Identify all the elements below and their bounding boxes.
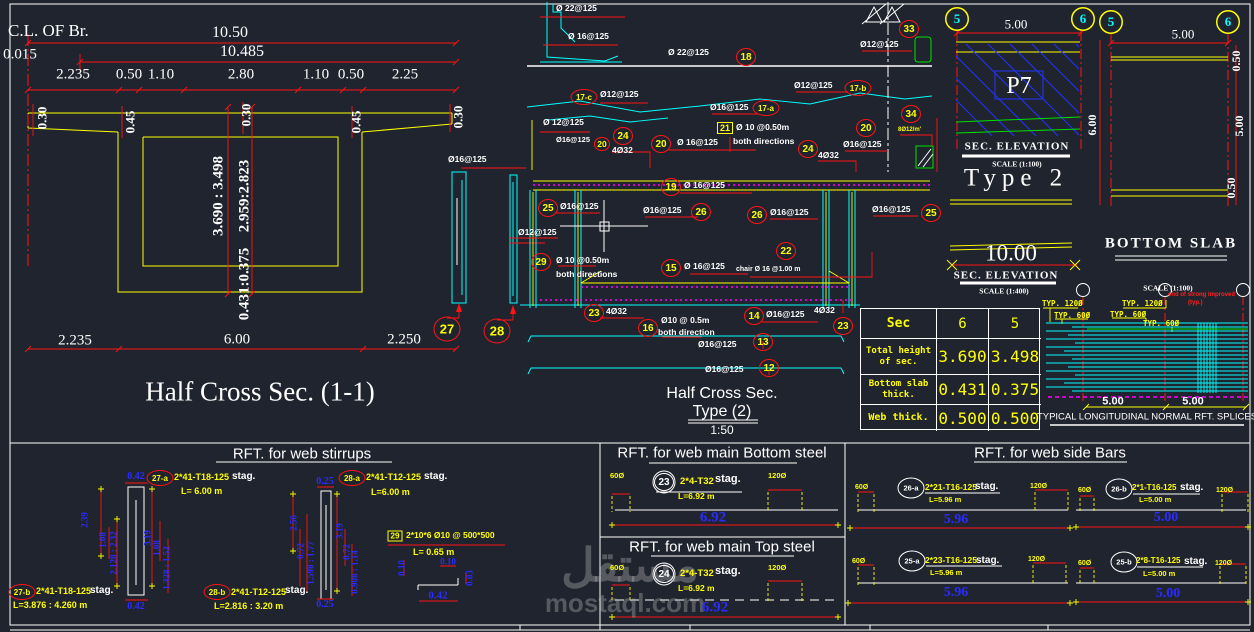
bar-length: L=5.00 m [1139, 496, 1171, 504]
dim-60: 60Ø [1078, 560, 1091, 567]
rebar-label: Ø12@125 [794, 81, 833, 90]
dim-0-015: 0.015 [3, 48, 37, 63]
rebar-label: Ø 10 @0.50m [556, 256, 609, 265]
dim-60: 60Ø [610, 564, 624, 572]
splice-note: end of strong improved [1168, 292, 1235, 298]
bar-dim: 5.00 [1154, 511, 1179, 525]
view-title: SEC. ELEVATION [965, 142, 1070, 153]
rebar-label: 4Ø32 [818, 151, 839, 160]
mark-balloon-28b: 28-b [204, 584, 231, 600]
dim-60: 60Ø [855, 484, 868, 491]
rebar-label: both directions [733, 137, 794, 146]
seg-dim: 0.50 [116, 68, 142, 83]
grid-bubble-6: 6 [1216, 10, 1240, 34]
table-cell: 0.431 [937, 375, 989, 405]
mark-balloon-22: 22 [776, 242, 796, 260]
mark-balloon-24: 24 [654, 565, 674, 583]
dim: 0.03 [466, 570, 475, 586]
stag-label: stag. [715, 566, 741, 577]
dim-5-00: 5.00 [1005, 18, 1028, 31]
mark-balloon-16: 16 [638, 319, 658, 337]
rebar-label: Ø16@125 [872, 205, 911, 214]
rebar-label: Ø12@125 [860, 40, 899, 49]
rebar-label: Ø10 @ 0.5m [661, 316, 709, 325]
table-cell: 3.498 [989, 339, 1041, 375]
mark-balloon-33: 33 [899, 20, 919, 38]
mark-balloon-27b: 27-b [9, 584, 36, 600]
seg-dim: 2.235 [56, 68, 90, 83]
dim: 2.39 [81, 512, 90, 528]
dim: 1.598 : 1.77 [307, 541, 316, 585]
bar-mark-text: 2*4-T32 [680, 477, 714, 487]
typ-label: TYP. 120Ø [1122, 300, 1163, 308]
rebar-label: Ø16@125 [643, 206, 682, 215]
mark-balloon-17b: 17-b [845, 80, 872, 96]
mark-balloon-26a: 26-a [903, 484, 918, 492]
bar-length: L=2.816 : 3.20 m [214, 602, 283, 611]
table-row-label: Web thick. [861, 405, 937, 431]
mark-balloon-20: 20 [856, 119, 876, 137]
rebar-label: Ø16@125 [698, 340, 737, 349]
bar-length: L=6.92 m [678, 492, 715, 501]
mark-balloon-18: 18 [736, 48, 756, 66]
dim: 3.19 [336, 523, 345, 539]
mark-balloon-26: 26 [747, 206, 767, 224]
mark-balloon-17c: 17-c [571, 89, 598, 105]
mid-section-scale: 1:50 [710, 424, 733, 436]
bar-mark-text: 2*8-T16-125 [1136, 557, 1180, 565]
dim-0-50: 0.50 [1225, 178, 1237, 199]
grid-bubble-5: 5 [1099, 10, 1123, 34]
bar-mark-text: 2*41-T12-125 [231, 588, 286, 597]
dim: 0.72 [297, 543, 306, 559]
dim-120: 120Ø [1028, 556, 1045, 563]
bar-mark-text: 2*41-T18-125 [174, 473, 229, 482]
bar-mark-text: 2*21-T16-125 [925, 483, 977, 492]
seg-dim: 1.10 [303, 68, 329, 83]
dim: 1.08 [99, 532, 108, 548]
bar-length: L= 6.00 m [181, 487, 222, 496]
panel-header-side-bars: RFT. for web side Bars [974, 446, 1126, 461]
mark-balloon-28a: 28-a [339, 470, 366, 486]
seg-dim: 2.80 [228, 68, 254, 83]
rebar-label: 4Ø32 [612, 146, 633, 155]
left-section-title: Half Cross Sec. (1-1) [145, 379, 374, 406]
stag-label: stag. [90, 586, 113, 596]
rebar-label: Ø16@125 [770, 208, 809, 217]
view-scale: SCALE (1:400) [979, 287, 1028, 295]
bar-dim: 5.96 [944, 586, 969, 600]
bar-mark-text: 2*10*6 Ø10 @ 500*500 [406, 531, 495, 540]
bar-dim: 5.00 [1156, 587, 1181, 601]
grid-bubble-6: 6 [1071, 7, 1095, 31]
dim-5-00: 5.00 [1172, 28, 1195, 41]
bar-dim: 6.92 [702, 601, 728, 616]
mid-section-subtitle: Type (2) [693, 404, 752, 420]
grid-bubble-5: 5 [945, 7, 969, 31]
dim-0-50: 0.50 [1230, 51, 1242, 72]
table-cell: 0.500 [989, 405, 1041, 431]
mark-balloon-27a: 27-a [147, 470, 174, 486]
mark-balloon-17a: 17-a [753, 100, 780, 116]
stag-label: stag. [715, 474, 741, 485]
rebar-label: Ø12@125 [600, 90, 639, 99]
dim: 0.10 [440, 558, 456, 567]
cad-canvas[interactable]: مستقل mostaql.com C.L. OF Br. 10.50 0.01… [0, 0, 1254, 632]
bar-mark-text: 2*41-T18-125 [36, 587, 91, 596]
bar-length: L=5.00 m [1143, 570, 1175, 578]
centerline-label: C.L. OF Br. [8, 22, 89, 39]
rebar-label: Ø 16@125 [677, 138, 718, 147]
mark-balloon-27: 27 [434, 317, 461, 342]
bottom-dim: 6.00 [224, 333, 250, 348]
table-header: Sec [861, 309, 937, 339]
bar-mark-text: 2*1-T16-125 [1132, 484, 1176, 492]
dim-60: 60Ø [1078, 487, 1091, 494]
dim-6-00: 6.00 [1086, 115, 1098, 136]
view-title: SEC. ELEVATION [954, 271, 1059, 282]
mark-balloon-29: 29 [531, 253, 551, 271]
mark-balloon-20: 20 [651, 135, 671, 153]
dim-120: 120Ø [1030, 483, 1047, 490]
rebar-label: 4Ø32 [606, 307, 627, 316]
mark-balloon-19: 19 [661, 178, 681, 196]
height-dim-total: 3.690 : 3.498 [212, 156, 227, 236]
height-dim-inner: 2.959:2.823 [238, 160, 253, 233]
stag-label: stag. [1180, 483, 1203, 493]
edge-dim: 0.30 [452, 106, 465, 129]
mark-balloon-25a: 25-a [904, 557, 919, 565]
mark-box-29: 29 [388, 531, 403, 542]
bar-dim: 5.96 [944, 513, 969, 527]
rebar-label: Ø16@125 [843, 140, 882, 149]
rebar-label: Ø16@125 [766, 310, 805, 319]
table-cell: 0.375 [989, 375, 1041, 405]
watermark-domain: mostaql.com [545, 590, 705, 616]
dim-10-00: 10.00 [985, 242, 1037, 265]
dim-120: 120Ø [1216, 487, 1233, 494]
dim: 0.42 [127, 602, 145, 612]
panel-header-bottom-steel: RFT. for web main Bottom steel [617, 446, 826, 461]
rebar-label: Ø16@125 [448, 155, 487, 164]
rebar-label: Ø 10 @0.50m [736, 123, 789, 132]
height-dim-slab: 0.431:0.375 [238, 248, 253, 321]
splice-note: (typ.) [1188, 300, 1203, 306]
view-title-bottom-slab: BOTTOM SLAB [1105, 237, 1237, 252]
typ-label: TYP. 60Ø [1054, 312, 1090, 320]
dim-60: 60Ø [852, 558, 865, 565]
mark-balloon-26: 26 [691, 203, 711, 221]
mark-balloon-26b: 26-b [1111, 485, 1126, 493]
mark-balloon-24: 24 [613, 127, 633, 145]
stag-label: stag. [424, 472, 447, 482]
rebar-label: Ø16@125 [705, 365, 744, 374]
panel-header-stirrups: RFT. for web stirrups [233, 447, 371, 462]
dim: 0.10 [398, 560, 407, 576]
dim-120: 120Ø [768, 472, 786, 480]
rebar-label: Ø16@125 [556, 136, 590, 144]
seg-dim: 2.25 [392, 68, 418, 83]
stag-label: stag. [1184, 557, 1207, 567]
dim-60: 60Ø [610, 472, 624, 480]
stag-label: stag. [976, 556, 999, 566]
bar-length: L=5.96 m [929, 496, 961, 504]
dim-10-485: 10.485 [220, 44, 264, 60]
bar-length: L=6.00 m [371, 488, 410, 497]
mark-balloon-28: 28 [484, 319, 511, 344]
dim: 0.908 : 1.14 [351, 550, 360, 594]
seg-dim: 0.50 [338, 68, 364, 83]
section-table: Sec 6 5 Total height of sec. 3.690 3.498… [860, 308, 1040, 430]
dim: 1.328 : 1.52 [163, 546, 172, 590]
rebar-label: 4Ø32 [814, 306, 835, 315]
table-row-label: Total height of sec. [861, 339, 937, 375]
dim-10-50: 10.50 [212, 25, 248, 41]
edge-dim: 0.45 [124, 111, 137, 134]
rebar-label: Ø 16@125 [684, 181, 725, 190]
bar-mark-text: 2*4-T32 [680, 569, 714, 579]
rebar-label: Ø 22@125 [556, 4, 597, 13]
rebar-label: Ø 12@125 [543, 118, 584, 127]
bar-length: L=5.96 m [930, 569, 962, 577]
edge-dim: 0.30 [240, 104, 253, 127]
mark-balloon-25: 25 [921, 204, 941, 222]
dim: 2.128 : 2.32 [110, 531, 119, 575]
mark-box-21: 21 [717, 122, 733, 134]
pier-label-p7: P7 [1006, 74, 1031, 98]
mid-section-title: Half Cross Sec. [666, 386, 777, 402]
edge-dim: 0.30 [36, 107, 49, 130]
bottom-dim: 2.250 [387, 333, 421, 348]
dim: 2.56 [290, 515, 299, 531]
bar-mark-text: 2*41-T12-125 [366, 473, 421, 482]
mark-balloon-24: 24 [798, 140, 818, 158]
mark-balloon-25b: 25-b [1116, 558, 1131, 566]
bar-dim: 6.92 [700, 511, 726, 526]
table-header: 5 [989, 309, 1041, 339]
dim: 0.42 [127, 472, 145, 482]
mark-balloon-20: 20 [594, 137, 610, 151]
splice-title: TYPICAL LONGITUDINAL NORMAL RFT. SPLICES [1037, 412, 1254, 422]
table-cell: 3.690 [937, 339, 989, 375]
mark-balloon-34: 34 [901, 105, 921, 123]
stag-label: stag. [285, 586, 308, 596]
rebar-label: Ø16@125 [710, 103, 749, 112]
mark-balloon-13: 13 [753, 333, 773, 351]
splice-dim: 5.00 [1102, 397, 1123, 408]
mark-balloon-15: 15 [661, 259, 681, 277]
mark-balloon-23: 23 [833, 317, 853, 335]
mark-balloon-14: 14 [744, 307, 764, 325]
view-scale: SCALE (1:100) [1143, 284, 1192, 292]
table-row-label: Bottom slab thick. [861, 375, 937, 405]
rebar-label: Ø16@125 [560, 202, 599, 211]
bottom-dim: 2.235 [58, 334, 92, 349]
dim-120: 120Ø [768, 564, 786, 572]
rebar-label: Ø 16@125 [684, 262, 725, 271]
table-cell: 0.500 [937, 405, 989, 431]
splice-dim: 5.00 [1182, 397, 1203, 408]
table-header: 6 [937, 309, 989, 339]
edge-dim: 0.45 [350, 111, 363, 134]
bar-length: L=6.92 m [678, 584, 715, 593]
bar-length: L=3.876 : 4.260 m [13, 601, 87, 610]
stag-label: stag. [232, 472, 255, 482]
panel-header-top-steel: RFT. for web main Top steel [629, 540, 815, 555]
seg-dim: 1.10 [148, 68, 174, 83]
type-label: Type 2 [964, 166, 1068, 191]
rebar-label: chair Ø 16 @1.00 m [736, 266, 800, 273]
mark-balloon-23: 23 [654, 473, 674, 491]
mark-balloon-23: 23 [584, 304, 604, 322]
dim: 0.25 [316, 477, 334, 487]
mark-balloon-12: 12 [759, 359, 779, 377]
rebar-label: Ø12@125 [518, 228, 557, 237]
rebar-label: both direction [658, 328, 715, 337]
rebar-label: Ø 16@125 [568, 32, 609, 41]
dim-5-00: 5.00 [1233, 116, 1245, 137]
typ-label: TYP. 60Ø [1110, 311, 1146, 319]
dim: 0.25 [316, 600, 334, 610]
rebar-label: both directions [556, 270, 617, 279]
typ-label: TYP. 120Ø [1042, 300, 1083, 308]
bar-mark-text: 2*23-T16-125 [925, 556, 977, 565]
stag-label: stag. [975, 482, 998, 492]
typ-label: TYP. 60Ø [1143, 320, 1179, 328]
mark-balloon-25: 25 [538, 199, 558, 217]
rebar-label: 8Ø12/m' [898, 127, 921, 133]
rebar-label: Ø 22@125 [668, 48, 709, 57]
dim: 1.08 [153, 540, 162, 556]
dim: 0.42 [428, 591, 447, 602]
dim-120: 120Ø [1215, 560, 1232, 567]
